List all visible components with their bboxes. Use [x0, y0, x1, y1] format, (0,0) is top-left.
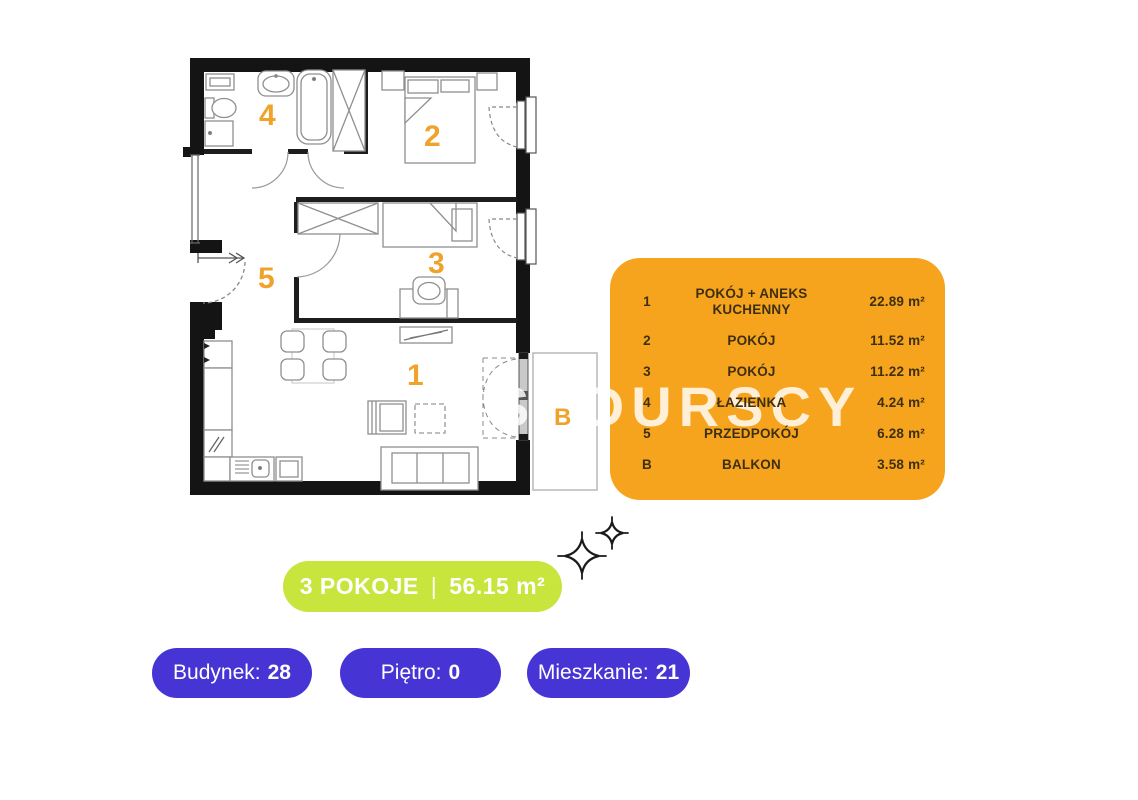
building-badge: Budynek: 28	[152, 648, 312, 698]
legend-row: 4 ŁAZIENKA 4.24 m²	[610, 387, 945, 418]
summary-pill: 3 POKOJE | 56.15 m²	[283, 561, 562, 612]
building-value: 28	[268, 661, 291, 685]
room-label-bedroom-small: 3	[428, 249, 445, 279]
shelf-icon	[206, 74, 234, 90]
summary-rooms: 3 POKOJE	[300, 573, 419, 600]
room-label-bathroom: 4	[259, 101, 276, 131]
kitchen-cabinets-icon	[204, 341, 232, 481]
hall-window	[190, 155, 200, 243]
legend-row: B BALKON 3.58 m²	[610, 449, 945, 480]
legend-panel: 1 POKÓJ + ANEKS KUCHENNY 22.89 m² 2 POKÓ…	[610, 258, 945, 500]
armchair-icon	[368, 401, 406, 434]
legend-room-name: POKÓJ	[727, 364, 775, 380]
legend-room-id: 5	[628, 426, 666, 441]
chair-icon	[323, 359, 346, 380]
legend-room-name: POKÓJ + ANEKS KUCHENNY	[667, 286, 837, 318]
legend-row: 2 POKÓJ 11.52 m²	[610, 325, 945, 356]
apartment-value: 21	[656, 661, 679, 685]
washer-icon	[205, 121, 233, 146]
room-label-balcony: B	[554, 406, 571, 430]
legend-room-area: 3.58 m²	[837, 457, 925, 472]
summary-area: 56.15 m²	[449, 573, 545, 600]
wardrobe-icon	[298, 203, 378, 234]
legend-room-name: ŁAZIENKA	[717, 395, 787, 411]
apartment-label: Mieszkanie:	[538, 661, 649, 685]
floor-badge: Piętro: 0	[340, 648, 501, 698]
legend-room-id: B	[628, 457, 666, 472]
nightstand-icon	[477, 73, 497, 90]
wardrobe-icon	[333, 70, 365, 151]
chair-icon	[281, 359, 304, 380]
sparkles-icon	[550, 514, 634, 580]
legend-room-id: 1	[628, 294, 666, 309]
room-label-living: 1	[407, 361, 424, 391]
sink-icon	[258, 71, 294, 96]
chair-icon	[323, 331, 346, 352]
legend-room-name: PRZEDPOKÓJ	[704, 426, 799, 442]
nightstand-icon	[382, 71, 404, 90]
coffee-table-icon	[415, 404, 445, 433]
room-label-bedroom-main: 2	[424, 122, 441, 152]
tv-board-icon	[400, 327, 452, 343]
legend-room-name: BALKON	[722, 457, 781, 473]
legend-room-area: 22.89 m²	[837, 294, 925, 309]
legend-room-id: 3	[628, 364, 666, 379]
kitchen-sink-icon	[230, 457, 274, 481]
summary-separator: |	[431, 573, 437, 600]
legend-room-area: 6.28 m²	[837, 426, 925, 441]
chair-icon	[281, 331, 304, 352]
legend-room-id: 2	[628, 333, 666, 348]
legend-room-name: POKÓJ	[727, 333, 775, 349]
sofa-icon	[381, 447, 478, 490]
floor-value: 0	[449, 661, 461, 685]
legend-room-id: 4	[628, 395, 666, 410]
floor-label: Piętro:	[381, 661, 442, 685]
bathtub-icon	[297, 70, 331, 144]
toilet-icon	[205, 98, 236, 118]
single-bed-icon	[383, 203, 477, 247]
apartment-badge: Mieszkanie: 21	[527, 648, 690, 698]
legend-room-area: 11.22 m²	[837, 364, 925, 379]
entrance-door	[198, 253, 245, 303]
legend-room-area: 4.24 m²	[837, 395, 925, 410]
legend-room-area: 11.52 m²	[837, 333, 925, 348]
legend-row: 5 PRZEDPOKÓJ 6.28 m²	[610, 418, 945, 449]
stove-icon	[276, 457, 302, 481]
room-label-hall: 5	[258, 264, 275, 294]
legend-row: 1 POKÓJ + ANEKS KUCHENNY 22.89 m²	[610, 278, 945, 325]
furniture	[204, 70, 497, 490]
office-chair-icon	[413, 277, 445, 304]
apartment-floorplan-page: 4 2 3 5 1 B SADURSCY 1 POKÓJ + ANEKS KUC…	[0, 0, 1138, 800]
building-label: Budynek:	[173, 661, 261, 685]
legend-row: 3 POKÓJ 11.22 m²	[610, 356, 945, 387]
